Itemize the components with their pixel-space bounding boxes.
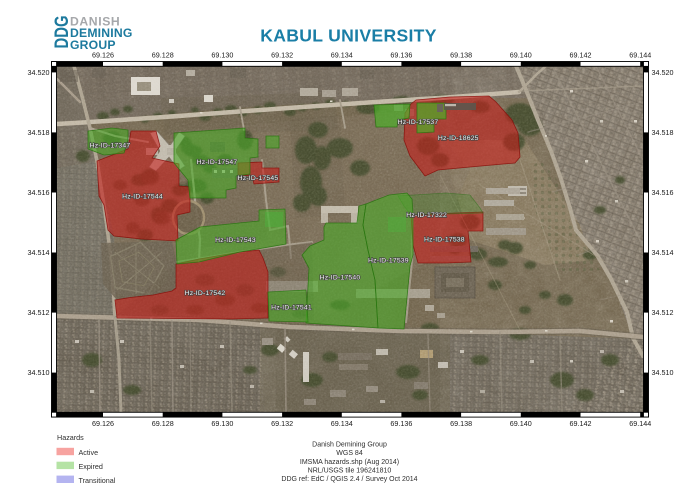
svg-text:69.130: 69.130 [211, 51, 233, 60]
svg-text:Transitional: Transitional [79, 476, 116, 485]
svg-text:KABUL UNIVERSITY: KABUL UNIVERSITY [260, 26, 437, 46]
svg-text:Hz-ID-17347: Hz-ID-17347 [90, 143, 131, 150]
svg-text:Hz-ID-17538: Hz-ID-17538 [424, 237, 465, 244]
svg-text:34.516: 34.516 [652, 188, 674, 197]
svg-text:69.138: 69.138 [450, 51, 472, 60]
svg-text:69.140: 69.140 [510, 51, 532, 60]
svg-text:69.128: 69.128 [152, 51, 174, 60]
svg-text:69.126: 69.126 [92, 419, 114, 428]
svg-text:69.132: 69.132 [271, 51, 293, 60]
svg-text:Danish Demining Group: Danish Demining Group [312, 442, 387, 449]
svg-text:Hz-ID-17543: Hz-ID-17543 [215, 237, 256, 244]
svg-text:34.516: 34.516 [28, 188, 50, 197]
svg-text:NRL/USGS tile 196241810: NRL/USGS tile 196241810 [308, 467, 392, 474]
svg-text:34.512: 34.512 [652, 308, 674, 317]
svg-text:34.510: 34.510 [28, 368, 50, 377]
svg-text:Hz-ID-17541: Hz-ID-17541 [271, 304, 312, 311]
svg-text:Hz-ID-17544: Hz-ID-17544 [122, 193, 163, 200]
svg-text:69.142: 69.142 [570, 51, 592, 60]
svg-text:69.144: 69.144 [629, 419, 651, 428]
svg-text:Active: Active [79, 448, 99, 457]
svg-text:34.518: 34.518 [652, 128, 674, 137]
svg-text:Hz-ID-17322: Hz-ID-17322 [406, 212, 447, 219]
svg-text:34.518: 34.518 [28, 128, 50, 137]
svg-text:69.132: 69.132 [271, 419, 293, 428]
svg-text:Hz-ID-17542: Hz-ID-17542 [185, 290, 226, 297]
svg-text:IMSMA hazards.shp (Aug 2014): IMSMA hazards.shp (Aug 2014) [300, 459, 399, 466]
svg-text:69.134: 69.134 [331, 51, 353, 60]
svg-text:69.142: 69.142 [570, 419, 592, 428]
svg-text:Hz-ID-17537: Hz-ID-17537 [398, 119, 439, 126]
svg-text:69.130: 69.130 [211, 419, 233, 428]
svg-text:Hz-ID-17540: Hz-ID-17540 [320, 275, 361, 282]
svg-text:GROUP: GROUP [70, 38, 116, 52]
svg-text:34.514: 34.514 [652, 248, 674, 257]
svg-text:34.510: 34.510 [652, 368, 674, 377]
svg-text:69.134: 69.134 [331, 419, 353, 428]
svg-text:Hz-ID-17545: Hz-ID-17545 [238, 175, 279, 182]
svg-text:69.144: 69.144 [629, 51, 651, 60]
svg-text:69.136: 69.136 [390, 419, 412, 428]
svg-text:DDG ref: EdC / QGIS 2.4 / Surv: DDG ref: EdC / QGIS 2.4 / Survey Oct 201… [281, 476, 417, 483]
svg-text:69.136: 69.136 [390, 51, 412, 60]
svg-text:Expired: Expired [79, 462, 103, 471]
svg-text:69.138: 69.138 [450, 419, 472, 428]
svg-text:Hz-ID-17539: Hz-ID-17539 [368, 258, 409, 265]
svg-text:34.514: 34.514 [28, 248, 50, 257]
svg-text:34.512: 34.512 [28, 308, 50, 317]
svg-text:34.520: 34.520 [652, 68, 674, 77]
svg-text:69.140: 69.140 [510, 419, 532, 428]
svg-text:34.520: 34.520 [28, 68, 50, 77]
svg-text:Hz-ID-17547: Hz-ID-17547 [197, 159, 238, 166]
svg-text:Hazards: Hazards [57, 433, 84, 442]
svg-text:WGS 84: WGS 84 [336, 450, 363, 457]
svg-text:69.128: 69.128 [152, 419, 174, 428]
svg-text:Hz-ID-18625: Hz-ID-18625 [438, 135, 479, 142]
